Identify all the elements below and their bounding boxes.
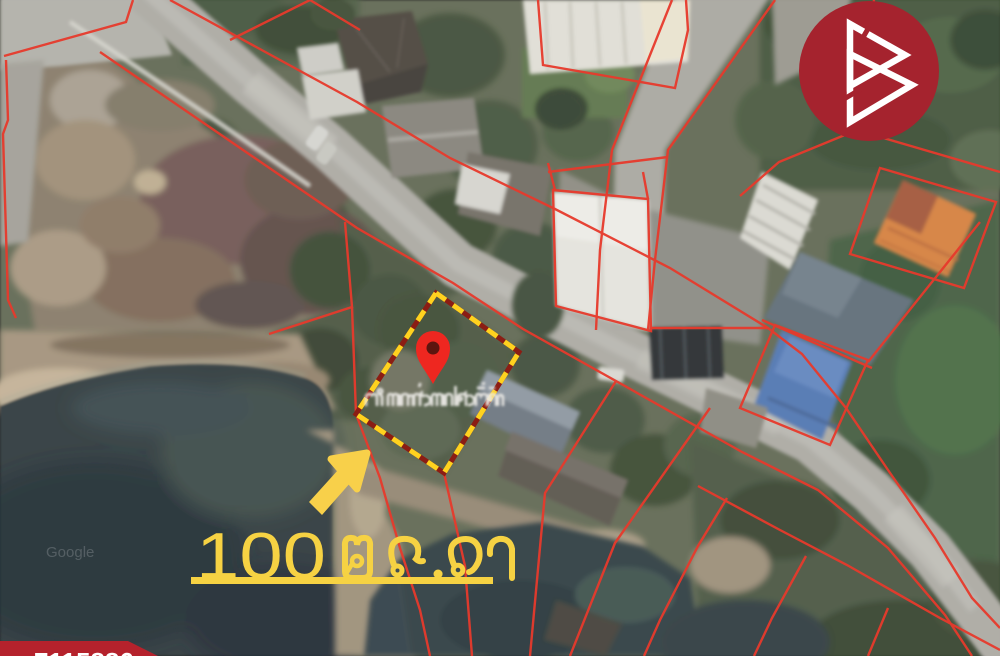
svg-text:Google: Google — [46, 544, 94, 561]
svg-text:7115886: 7115886 — [34, 647, 134, 656]
